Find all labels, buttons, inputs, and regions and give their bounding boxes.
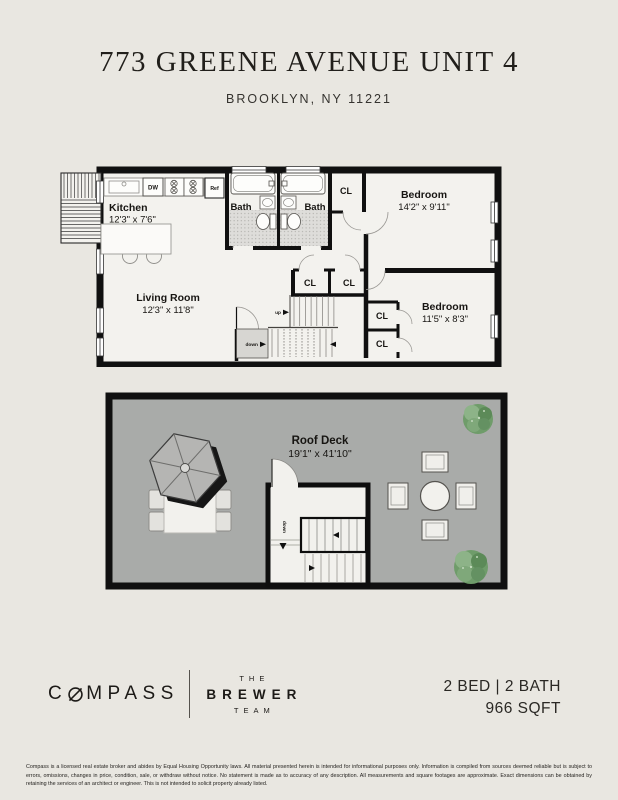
round-table <box>421 482 450 511</box>
team-line-team: TEAM <box>234 706 275 715</box>
closet-label: CL <box>376 339 388 349</box>
closet-label: CL <box>340 186 352 196</box>
closet-label: CL <box>376 311 388 321</box>
bedroom1-label: Bedroom <box>401 189 447 201</box>
refrigerator-label: Ref <box>210 186 219 192</box>
closet-label: CL <box>343 278 355 288</box>
listing-stats: 2 BED | 2 BATH 966 SQFT <box>443 676 561 720</box>
bedroom2-dims: 11'5" x 8'3" <box>422 314 468 325</box>
page-subtitle: BROOKLYN, NY 11221 <box>0 92 618 106</box>
kitchen-dims: 12'3" x 7'6" <box>109 215 156 226</box>
floorplan-page: 773 GREENE AVENUE UNIT 4 BROOKLYN, NY 11… <box>0 0 618 800</box>
kitchen-counter: DW Ref <box>104 178 224 198</box>
compass-logo: C MPASS <box>48 683 179 705</box>
page-title: 773 GREENE AVENUE UNIT 4 <box>0 46 618 79</box>
logo-divider <box>189 670 191 718</box>
brewer-team-logo: THE BREWER TEAM <box>206 672 302 717</box>
stairs-up-label: up <box>275 311 281 316</box>
square-footage: 966 SQFT <box>443 698 561 720</box>
living-room-label: Living Room <box>136 292 200 304</box>
roof-deck-svg: down <box>104 391 509 591</box>
team-line-brewer: BREWER <box>206 687 302 702</box>
plant-top-right <box>463 404 493 434</box>
roof-deck-dims: 19'1" x 41'10" <box>288 448 352 460</box>
living-room-dims: 12'3" x 11'8" <box>142 305 193 316</box>
compass-o-icon <box>67 686 84 703</box>
closet-label: CL <box>304 278 316 288</box>
stove <box>165 178 203 196</box>
bathtub <box>281 173 325 194</box>
floorplan-main-svg: DW Ref <box>53 162 503 367</box>
dishwasher-label: DW <box>148 186 158 192</box>
bedroom1-dims: 14'2" x 9'11" <box>398 202 449 213</box>
roof-stairs-down-label: down <box>282 521 287 533</box>
kitchen-label: Kitchen <box>109 202 148 214</box>
bath2-label: Bath <box>304 202 325 213</box>
fire-escape <box>61 173 101 243</box>
brand-text-c: C <box>48 683 67 705</box>
brand-text-rest: MPASS <box>86 683 179 705</box>
legal-disclaimer: Compass is a licensed real estate broker… <box>26 763 592 789</box>
toilet <box>281 214 301 230</box>
team-line-the: THE <box>239 674 269 683</box>
floorplan-main: DW Ref <box>53 162 503 367</box>
bathtub <box>231 173 275 194</box>
plant-bottom-right <box>454 550 488 584</box>
footer-logo: C MPASS THE BREWER TEAM <box>48 664 302 724</box>
bath1-label: Bath <box>230 202 251 213</box>
toilet <box>257 214 277 230</box>
bed-bath-count: 2 BED | 2 BATH <box>443 676 561 698</box>
bedroom2-label: Bedroom <box>422 301 468 313</box>
floorplan-roof: down <box>104 391 509 591</box>
roof-deck-label: Roof Deck <box>292 435 349 447</box>
stairs-down-label: down <box>245 342 258 348</box>
